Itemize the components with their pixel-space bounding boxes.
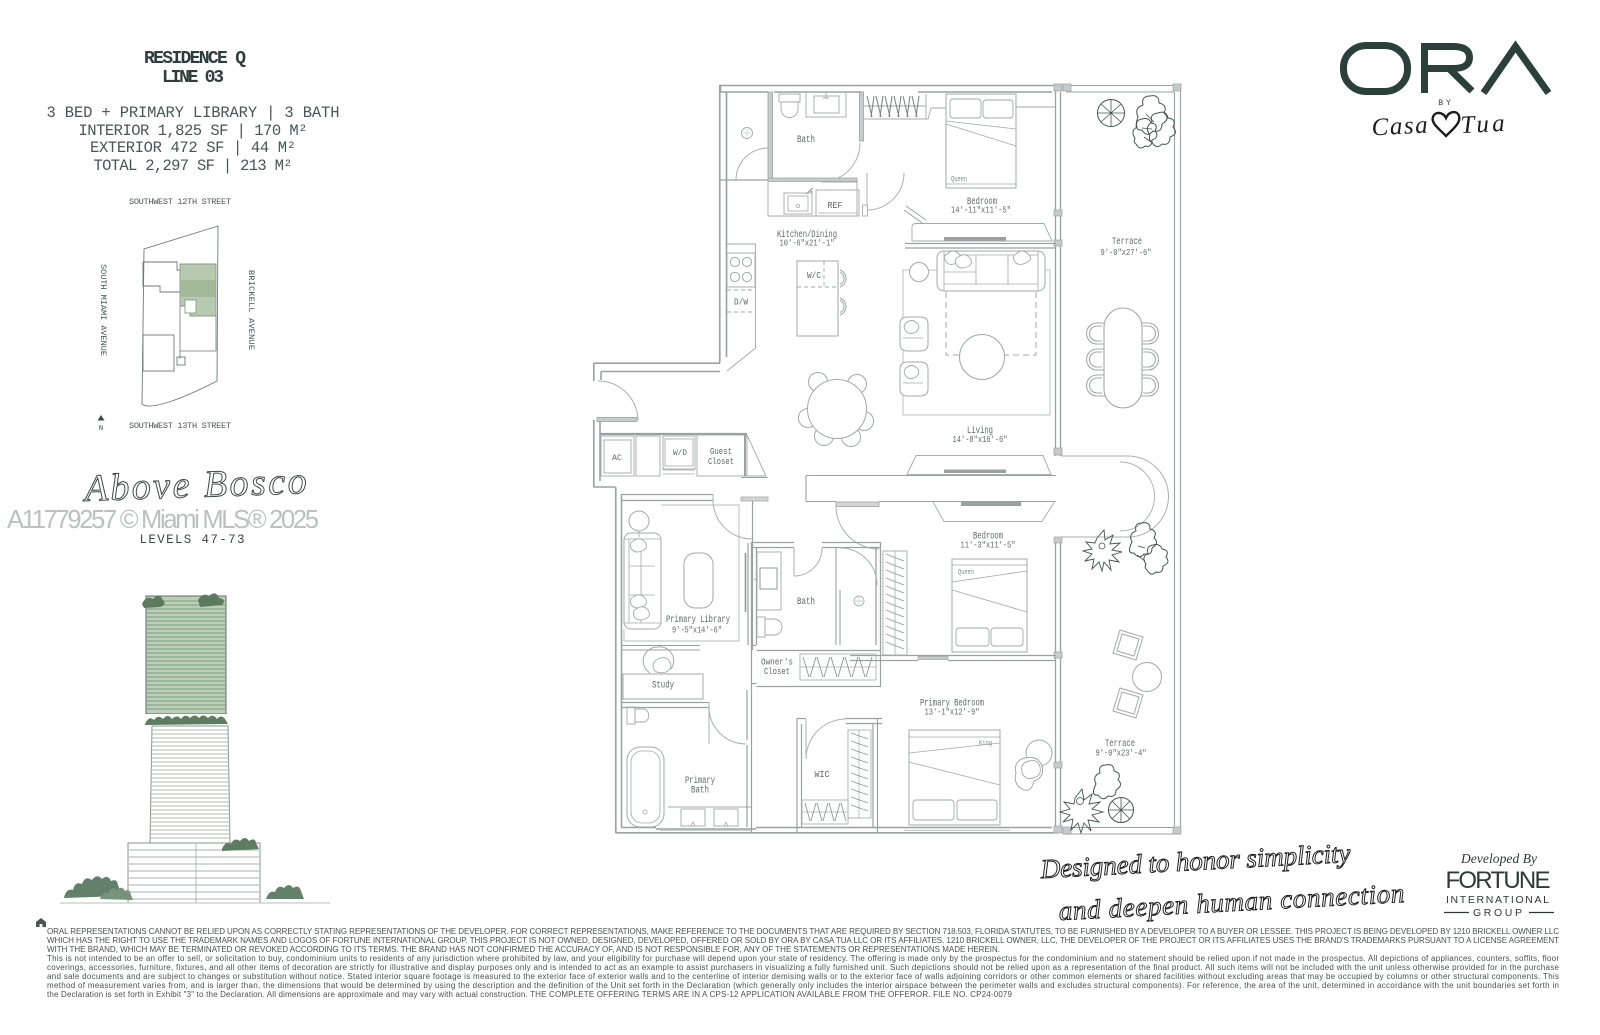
- svg-text:RESIDENCE Q: RESIDENCE Q: [144, 49, 248, 69]
- svg-text:Closet: Closet: [708, 456, 734, 467]
- svg-text:13'-1"x12'-9": 13'-1"x12'-9": [925, 707, 980, 718]
- svg-text:SOUTHWEST 12TH STREET: SOUTHWEST 12TH STREET: [129, 197, 231, 207]
- svg-text:Queen: Queen: [958, 569, 974, 577]
- svg-text:INTERIOR 1,825 SF | 170 M²: INTERIOR 1,825 SF | 170 M²: [79, 122, 308, 140]
- svg-text:coverings, accessories, furnit: coverings, accessories, furniture, fixtu…: [47, 963, 1560, 972]
- svg-text:LINE 03: LINE 03: [162, 68, 226, 88]
- svg-text:SOUTHWEST 13TH STREET: SOUTHWEST 13TH STREET: [129, 421, 231, 431]
- svg-text:King: King: [979, 740, 992, 748]
- svg-text:Bath: Bath: [797, 596, 815, 608]
- svg-text:Above Bosco: Above Bosco: [81, 460, 307, 510]
- svg-text:GROUP: GROUP: [1473, 907, 1525, 919]
- svg-text:10'-6"x21'-1": 10'-6"x21'-1": [780, 238, 835, 249]
- svg-text:3 BED + PRIMARY LIBRARY | 3 BA: 3 BED + PRIMARY LIBRARY | 3 BATH: [47, 104, 340, 122]
- svg-text:AC: AC: [612, 453, 622, 463]
- svg-text:Closet: Closet: [764, 666, 790, 677]
- svg-text:11'-3"x11'-5": 11'-3"x11'-5": [961, 540, 1016, 551]
- svg-text:ORAL REPRESENTATIONS CANNOT BE: ORAL REPRESENTATIONS CANNOT BE RELIED UP…: [47, 927, 1559, 936]
- svg-text:This is not intended to be an: This is not intended to be an offer to s…: [47, 954, 1559, 963]
- svg-text:Casa: Casa: [1371, 112, 1428, 142]
- svg-text:A11779257 © Miami MLS® 2025: A11779257 © Miami MLS® 2025: [7, 506, 319, 534]
- svg-text:9'-0"x27'-6": 9'-0"x27'-6": [1101, 247, 1152, 258]
- svg-text:9'-0"x23'-4": 9'-0"x23'-4": [1096, 748, 1147, 759]
- svg-text:BRICKELL AVENUE: BRICKELL AVENUE: [246, 270, 256, 350]
- svg-text:D/W: D/W: [734, 298, 749, 308]
- svg-text:EXTERIOR 472 SF | 44 M²: EXTERIOR 472 SF | 44 M²: [90, 139, 296, 157]
- svg-text:Queen: Queen: [951, 176, 967, 184]
- svg-text:Developed By: Developed By: [1460, 851, 1537, 866]
- svg-text:Bath: Bath: [797, 134, 815, 146]
- svg-text:Study: Study: [652, 680, 674, 692]
- svg-text:Bath: Bath: [691, 785, 709, 797]
- svg-text:N: N: [99, 425, 103, 433]
- svg-text:9'-5"x14'-6": 9'-5"x14'-6": [672, 625, 722, 636]
- svg-text:and sale documents and are sub: and sale documents and are subject to ch…: [47, 972, 1559, 981]
- svg-text:BY: BY: [1438, 99, 1454, 108]
- svg-text:WIC: WIC: [815, 769, 830, 780]
- svg-text:REF: REF: [828, 201, 843, 211]
- svg-text:W/C: W/C: [807, 271, 822, 281]
- svg-text:FORTUNE: FORTUNE: [1446, 867, 1553, 894]
- svg-text:14'-8"x16'-6": 14'-8"x16'-6": [953, 434, 1008, 445]
- svg-text:WHICH HAS THE RIGHT TO USE THE: WHICH HAS THE RIGHT TO USE THE TRADEMARK…: [47, 936, 1559, 945]
- svg-text:WITH THE BRAND, WHICH MAY BE T: WITH THE BRAND, WHICH MAY BE TERMINATED …: [47, 945, 1000, 954]
- svg-text:INTERNATIONAL: INTERNATIONAL: [1446, 894, 1552, 906]
- svg-text:TOTAL 2,297 SF | 213 M²: TOTAL 2,297 SF | 213 M²: [94, 157, 293, 175]
- svg-text:method of measurement varies f: method of measurement varies from, and i…: [47, 981, 1559, 990]
- svg-text:the Declaration is set forth i: the Declaration is set forth in Exhibit …: [47, 990, 1013, 999]
- svg-text:14'-11"x11'-5": 14'-11"x11'-5": [951, 205, 1011, 216]
- svg-text:SOUTH MIAMI AVENUE: SOUTH MIAMI AVENUE: [98, 264, 108, 356]
- svg-text:LEVELS 47-73: LEVELS 47-73: [140, 533, 245, 547]
- svg-text:W/D: W/D: [673, 448, 687, 458]
- svg-text:Tua: Tua: [1460, 110, 1505, 139]
